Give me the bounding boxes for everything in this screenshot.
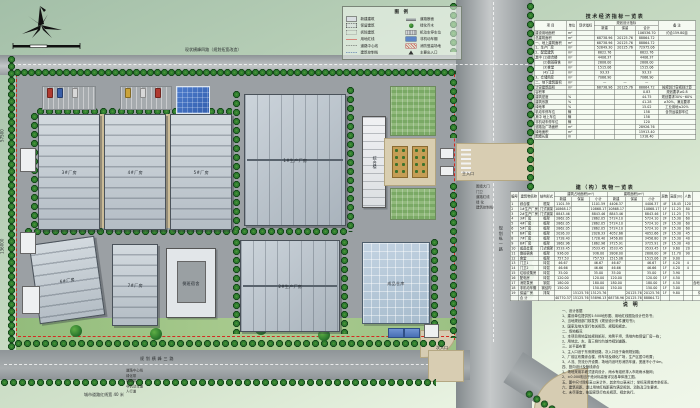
hedge-column: [8, 56, 17, 350]
tree-column: [430, 238, 439, 326]
tree: [70, 325, 82, 337]
demolish-symbol: [345, 30, 358, 35]
tree: [150, 328, 162, 340]
workshop-7: 7#厂房: [112, 244, 158, 326]
leader-labels-bottom: 道路中心线绿化带隔离带非机动车道人行道: [126, 368, 170, 408]
legend-item: 机动车停车位: [405, 29, 460, 36]
dormitory-building: 倒班宿舍: [166, 248, 216, 318]
south-road-label: 规划横峰三路: [140, 355, 175, 361]
legend-item: 用地红线: [345, 36, 400, 43]
tree-column: [232, 90, 241, 230]
workshop-3: 3#厂房: [38, 114, 100, 230]
bike-shed: [404, 328, 420, 338]
car: [47, 88, 53, 98]
tree-row: [14, 339, 446, 348]
building-table-title: 建（构）筑物一览表: [510, 183, 700, 191]
green-parking: [390, 188, 436, 220]
workshop-4: 4#厂房: [104, 114, 166, 230]
road-section-symbol: [405, 17, 418, 22]
tree-column: [346, 86, 355, 232]
legend-panel: 图 例 新建建筑 保留建筑 拆除建筑 用地红线 道路中心线 建筑控制线 道路断面…: [342, 6, 462, 60]
auxiliary-building: [20, 232, 36, 254]
side-entry-label: 次入口: [436, 344, 448, 350]
south-road-centerline: [4, 364, 454, 365]
main-entry-label: 主入口: [462, 170, 474, 176]
fire-lane-symbol: [405, 43, 418, 48]
tree-column: [449, 78, 458, 138]
workshop-6: 6#厂房: [29, 236, 105, 324]
car: [125, 88, 131, 98]
legend-title: 图 例: [343, 8, 461, 15]
north-road-label: 现状横峰四路（规划拓宽改造）: [185, 46, 241, 52]
gate-house: [440, 166, 454, 176]
centerline-symbol: [345, 46, 358, 47]
red-line-symbol: [345, 39, 358, 40]
road-width-note: 城市道路红线宽 40 米: [84, 391, 124, 397]
west-dimension-1: 57500: [0, 129, 5, 142]
bike-shed: [388, 328, 404, 338]
south-road: [0, 350, 470, 380]
scale-bar: [12, 42, 82, 50]
tech-table-title: 技术经济指标一览表: [534, 12, 696, 20]
legend-item: 保留建筑: [345, 22, 400, 29]
notes-title: 说 明: [562, 300, 700, 308]
tree-row: [0, 378, 436, 387]
legend-item: 道路断面: [405, 16, 460, 23]
tree-symbol: [405, 23, 418, 28]
legend-item: 绿化乔木: [405, 22, 460, 29]
north-road-centerline: [8, 64, 528, 65]
legend-item: 道路中心线: [345, 43, 400, 50]
notes-panel: 说 明 一、设计依据1、建设单位提供的1:500地形图、用地红线图及设计任务书；…: [562, 300, 700, 408]
main-workshop-1: 1#生产厂房: [244, 94, 346, 226]
car: [72, 88, 78, 98]
entry-symbol: [405, 51, 418, 55]
new-building-symbol: [345, 16, 358, 21]
legend-item: 非机动车棚: [405, 36, 460, 43]
legend-item: 消防登高场地: [405, 43, 460, 50]
tree-row: [14, 69, 456, 78]
planter: [392, 146, 408, 178]
site-plan-canvas: 3#厂房 4#厂房 5#厂房 1#生产厂房 综合楼 6#厂房 7#厂房 倒班宿舍…: [0, 0, 700, 408]
car: [155, 88, 161, 98]
parking-symbol: [405, 30, 418, 35]
car: [57, 88, 63, 98]
legend-item: 拆除建筑: [345, 29, 400, 36]
kept-building-symbol: [345, 23, 358, 28]
legend-item: 建筑控制线: [345, 49, 400, 56]
green-parking: [390, 86, 436, 136]
auxiliary-building: [22, 286, 40, 314]
control-line-symbol: [345, 52, 358, 53]
car: [140, 88, 146, 98]
legend-item: 新建建筑: [345, 16, 400, 23]
office-building: 综合楼: [362, 116, 386, 208]
main-workshop-2: 2#生产厂房: [240, 240, 340, 332]
workshop-5: 5#厂房: [170, 114, 232, 230]
gate-house: [440, 148, 454, 159]
planter: [412, 146, 428, 178]
tree-column: [340, 238, 349, 334]
warehouse-building: 成品仓库: [362, 242, 430, 324]
auxiliary-building: [20, 148, 36, 172]
west-dimension-2: 136000: [0, 239, 5, 254]
north-arrow-icon: [18, 4, 66, 42]
shed-symbol: [405, 37, 418, 42]
fire-water-pool: [176, 86, 210, 114]
tree-column: [449, 182, 458, 338]
gate-house-south: [424, 324, 439, 338]
legend-item: 主要出入口: [405, 49, 460, 56]
